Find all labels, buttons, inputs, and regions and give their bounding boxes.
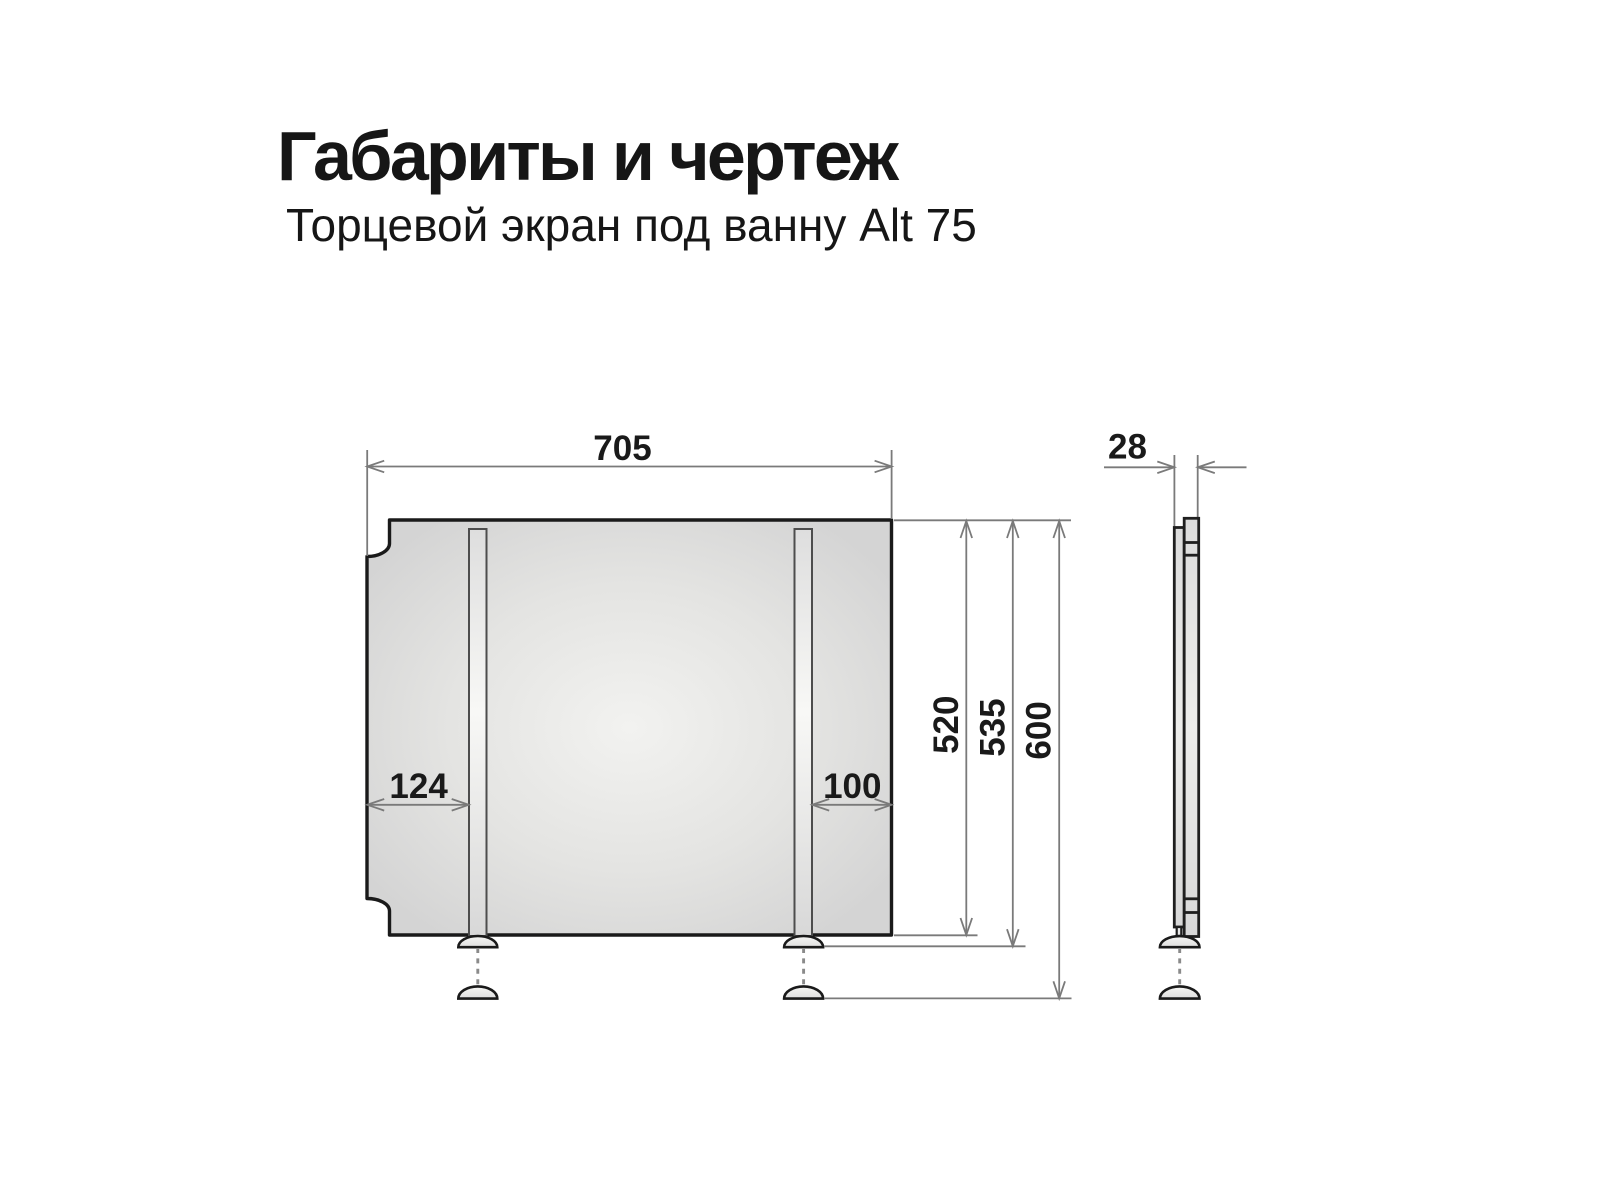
svg-text:124: 124 [389,767,448,806]
svg-text:100: 100 [823,767,881,806]
svg-text:28: 28 [1108,428,1147,467]
svg-text:600: 600 [1020,701,1059,759]
svg-text:535: 535 [973,698,1012,756]
svg-text:705: 705 [593,429,651,468]
svg-text:520: 520 [927,695,966,753]
